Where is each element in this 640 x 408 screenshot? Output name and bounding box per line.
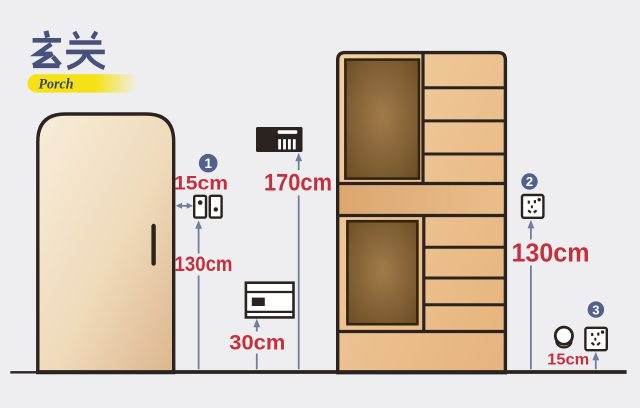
svg-text:Porch: Porch [39, 77, 74, 93]
svg-text:130cm: 130cm [512, 240, 590, 268]
svg-text:1: 1 [204, 156, 212, 171]
svg-text:30cm: 30cm [229, 332, 285, 355]
svg-text:170cm: 170cm [264, 169, 332, 196]
svg-text:15cm: 15cm [174, 174, 228, 195]
svg-text:2: 2 [526, 174, 533, 189]
svg-text:15cm: 15cm [547, 351, 589, 368]
svg-text:130cm: 130cm [175, 253, 233, 276]
svg-text:3: 3 [592, 302, 599, 317]
